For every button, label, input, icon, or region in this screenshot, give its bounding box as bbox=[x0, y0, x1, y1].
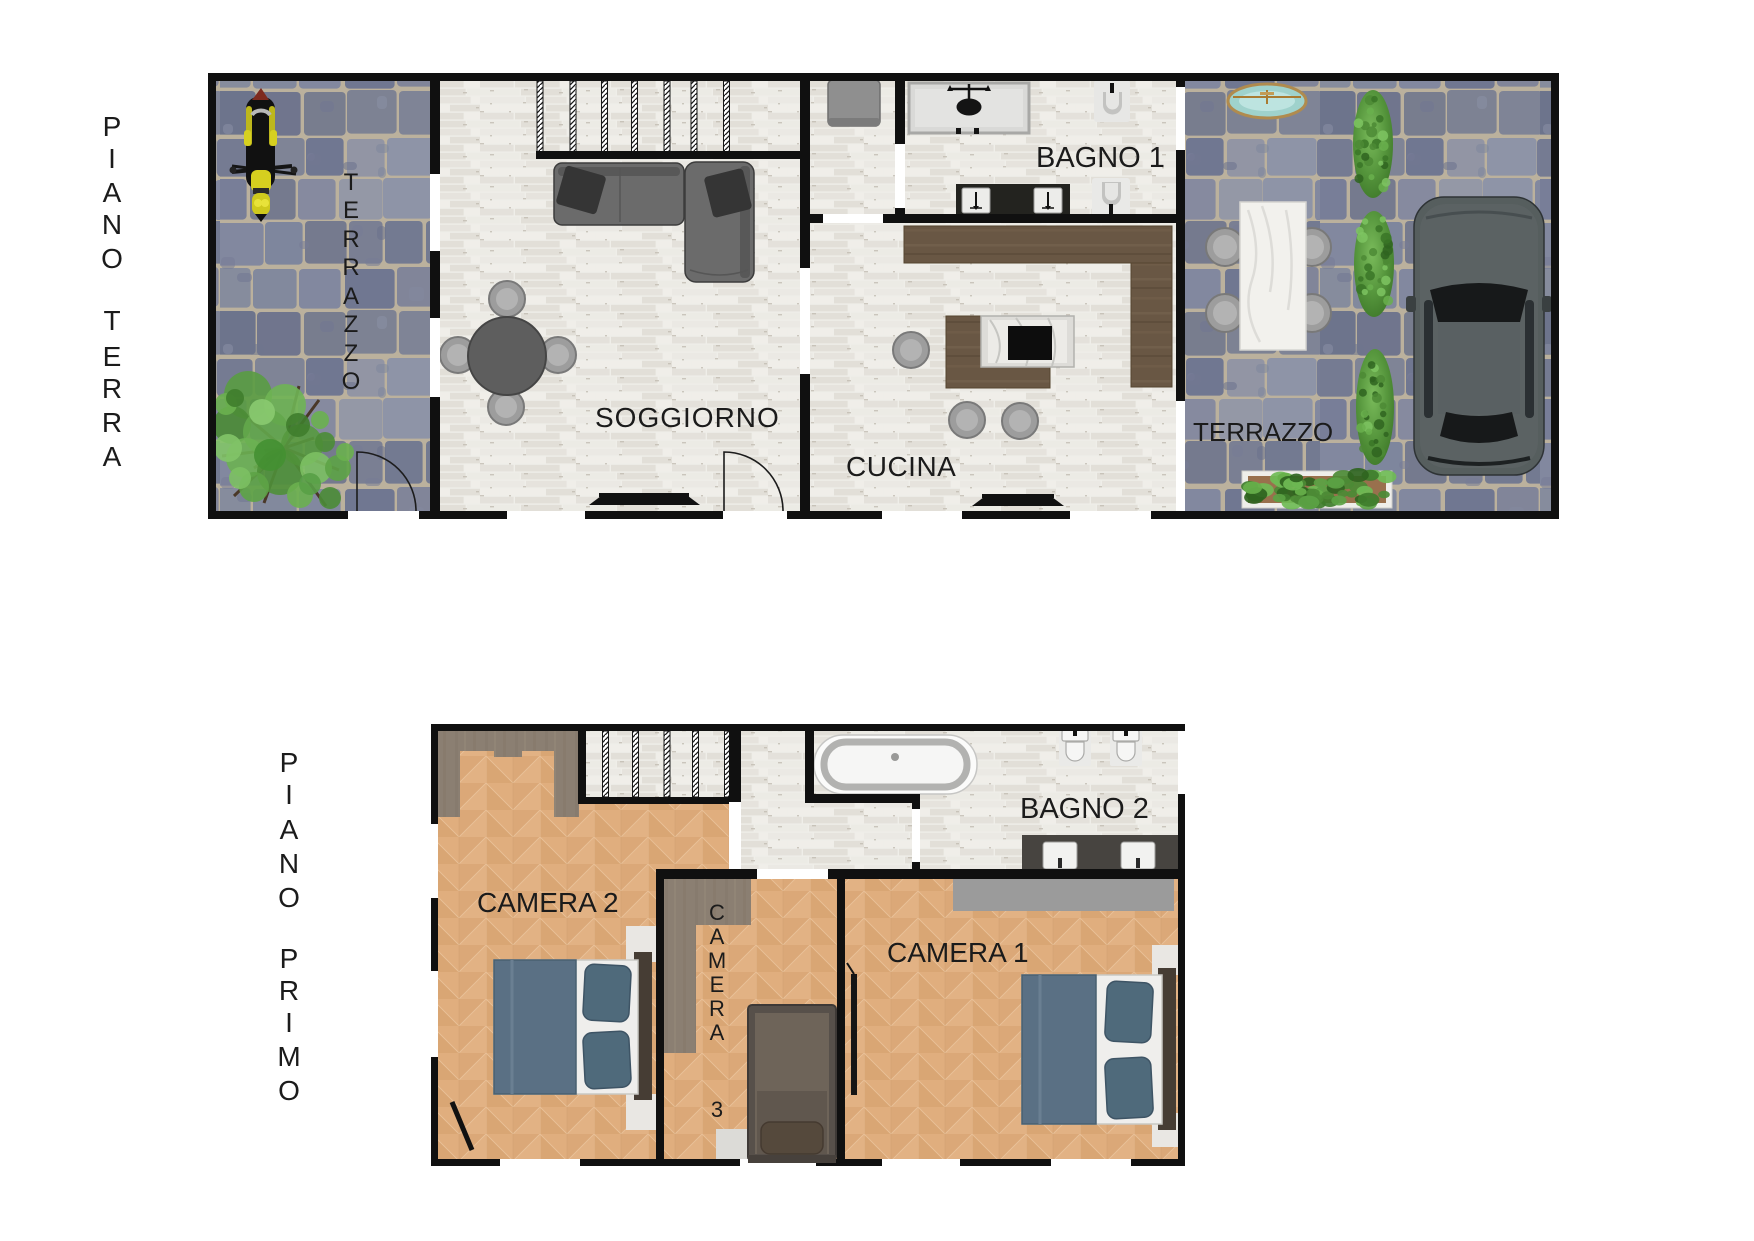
svg-text:O: O bbox=[101, 243, 123, 274]
svg-text:R: R bbox=[342, 226, 359, 253]
svg-text:CAMERA 2: CAMERA 2 bbox=[477, 887, 619, 918]
svg-text:R: R bbox=[342, 254, 359, 281]
svg-text:M: M bbox=[277, 1041, 300, 1072]
svg-text:N: N bbox=[102, 209, 122, 240]
svg-text:A: A bbox=[103, 441, 122, 472]
svg-text:TERRAZZO: TERRAZZO bbox=[1193, 417, 1333, 447]
svg-text:C: C bbox=[709, 900, 725, 925]
svg-text:A: A bbox=[710, 924, 725, 949]
svg-text:A: A bbox=[710, 1020, 725, 1045]
svg-text:R: R bbox=[279, 975, 299, 1006]
svg-text:T: T bbox=[103, 305, 120, 336]
svg-text:R: R bbox=[102, 373, 122, 404]
svg-text:R: R bbox=[709, 996, 725, 1021]
svg-text:M: M bbox=[708, 948, 726, 973]
svg-text:I: I bbox=[108, 143, 116, 174]
svg-text:I: I bbox=[285, 779, 293, 810]
svg-text:E: E bbox=[103, 341, 122, 372]
svg-text:O: O bbox=[278, 882, 300, 913]
svg-text:P: P bbox=[103, 111, 122, 142]
svg-text:Z: Z bbox=[344, 340, 359, 367]
svg-text:BAGNO 2: BAGNO 2 bbox=[1020, 793, 1149, 825]
svg-text:O: O bbox=[278, 1075, 300, 1106]
svg-text:SOGGIORNO: SOGGIORNO bbox=[595, 402, 780, 433]
svg-text:I: I bbox=[285, 1007, 293, 1038]
svg-text:BAGNO 1: BAGNO 1 bbox=[1036, 142, 1165, 174]
svg-text:A: A bbox=[103, 177, 122, 208]
svg-text:A: A bbox=[280, 814, 299, 845]
svg-text:T: T bbox=[344, 169, 359, 196]
svg-text:3: 3 bbox=[711, 1097, 723, 1122]
svg-text:E: E bbox=[343, 197, 359, 224]
svg-text:N: N bbox=[279, 848, 299, 879]
svg-text:Z: Z bbox=[344, 311, 359, 338]
svg-text:CAMERA 1: CAMERA 1 bbox=[887, 937, 1029, 968]
svg-text:O: O bbox=[342, 368, 361, 395]
svg-text:CUCINA: CUCINA bbox=[846, 451, 956, 482]
svg-text:P: P bbox=[280, 943, 299, 974]
svg-text:R: R bbox=[102, 407, 122, 438]
svg-text:P: P bbox=[280, 747, 299, 778]
svg-text:E: E bbox=[710, 972, 725, 997]
svg-text:A: A bbox=[343, 283, 359, 310]
